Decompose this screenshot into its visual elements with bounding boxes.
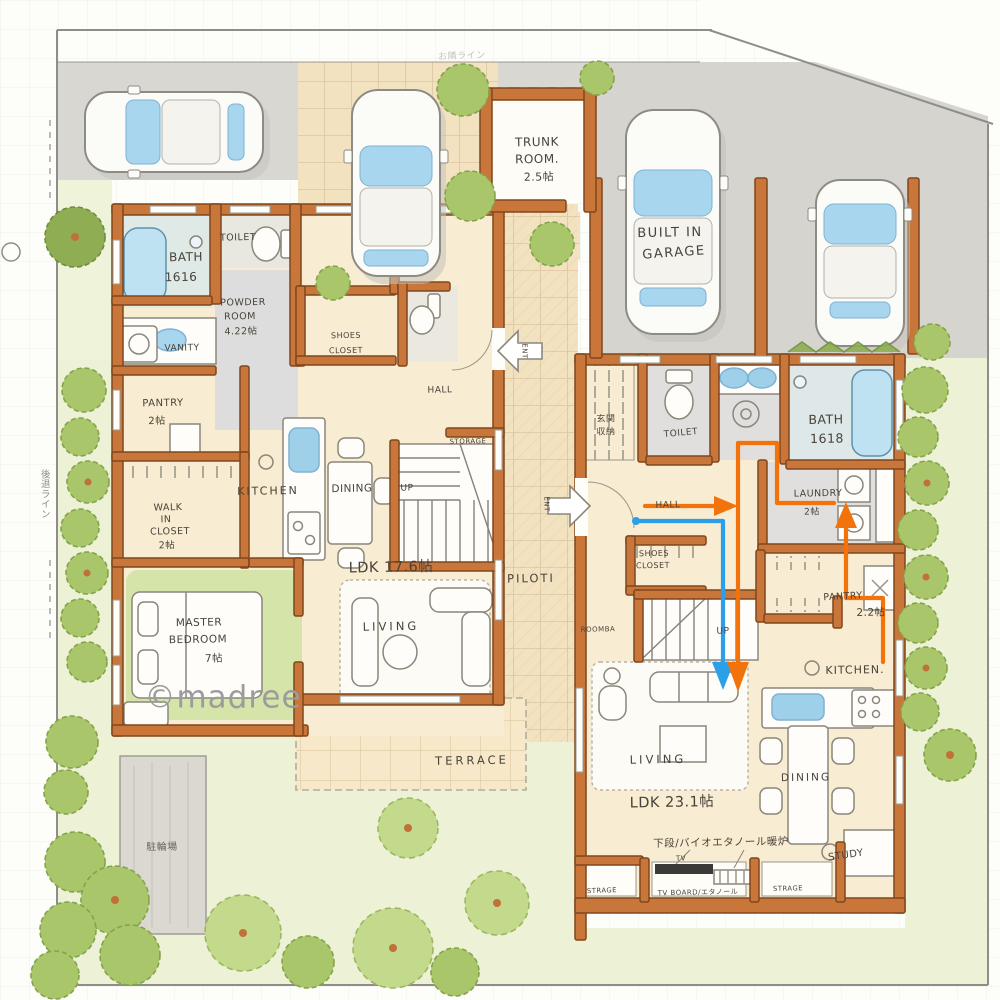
shoes-closet-left-label-2: CLOSET [329,347,363,356]
bath-right-size: 1618 [810,432,844,445]
wic-label-3: CLOSET [150,527,190,537]
bathtub-left [124,228,166,302]
washing-machine-left [121,326,157,362]
pantry-left-size: 2帖 [148,417,166,427]
stairs-right [640,594,758,660]
powder-room-label-2: ROOM [224,312,256,322]
fireplace-note: 下段/バイオエタノール暖炉 [653,837,789,850]
up-left-label: UP [400,484,413,493]
floor-plan-canvas: TRUNK ROOM. 2.5帖 BUILT IN GARAGE BATH 16… [0,0,1000,1000]
entrance-storage-label-2: 収納 [596,428,615,437]
watermark: ©madree [144,683,301,714]
shoes-closet-right-label-1: SHOES [639,550,669,559]
terrace-label: TERRACE [435,755,509,768]
tv-label: TV [676,855,686,862]
master-bedroom-label-1: MASTER [176,617,222,628]
entrance-left-label: ENT [521,343,528,358]
tv-unit [655,864,713,874]
entrance-storage-label-1: 玄関 [596,415,615,424]
car-2 [344,90,448,284]
dining-left-label: DINING [331,483,372,494]
living-left-furniture [340,580,492,702]
pantry-right-label: PANTRY [823,591,863,603]
master-bedroom-label-2: BEDROOM [169,634,227,646]
bath-right-label: BATH [808,413,843,426]
car-4 [808,180,912,354]
storage-right-house-label-1: STRAGE [587,887,617,895]
hall-left-label: HALL [427,386,452,395]
entrance-right-label: ENT [543,496,550,511]
toilet-right [665,370,693,419]
ldk-left-label: LDK 17.6帖 [349,560,434,576]
master-bedroom-size: 7帖 [205,654,223,665]
stairs-left [394,444,500,564]
bicycle-area-label: 駐輪場 [146,843,178,854]
fridge-right [864,566,896,610]
hall-right-label: HALL [655,501,680,510]
laundry-size: 2帖 [804,508,820,517]
shoes-closet-right-label-2: CLOSET [636,562,670,571]
toilet-left-label: TOILET [220,233,256,243]
setback-line-note: 後退ライン [39,469,49,519]
pantry-right-size: 2.2帖 [856,607,885,618]
bath-left-label: BATH [169,251,203,264]
roomba-label: ROOMBA [581,626,616,634]
living-right-label: LIVING [630,754,687,766]
laundry-label: LAUNDRY [794,489,843,499]
car-1 [85,86,270,180]
powder-room-size: 4.22帖 [224,327,257,337]
wic-size: 2帖 [159,541,176,551]
garage-label-1: BUILT IN [637,226,703,240]
trunk-room-size: 2.5帖 [524,171,555,183]
kitchen-left-label: KITCHEN [237,485,299,497]
up-right-label: UP [716,627,729,636]
piloti-label: PILOTI [507,573,555,585]
pantry-left-label: PANTRY [142,399,183,410]
wic-label-2: IN [160,515,171,525]
ldk-right-label: LDK 23.1帖 [630,795,715,811]
wic-label-1: WALK [153,503,182,513]
trunk-room-label-1: TRUNK [515,136,559,149]
bath-left-size: 1616 [165,271,198,284]
storage-left-house-label: STORAGE [450,438,487,446]
toilet-left [252,227,294,261]
tv-board-label: TV BOARD/エタノール [658,889,739,897]
flow-blue-start [632,517,640,525]
storage-right-house-label-2: STRAGE [773,885,803,892]
shoes-closet-left-label-1: SHOES [331,332,361,341]
kitchen-right-label: KITCHEN. [825,664,884,676]
living-left-label: LIVING [363,621,420,633]
powder-room-label-1: POWDER [220,298,266,308]
dining-right-label: DINING [781,772,831,783]
vanity-label: VANITY [164,344,199,354]
trunk-room-label-2: ROOM. [515,153,559,166]
neighbor-line-note: お隣ライン [438,52,486,63]
